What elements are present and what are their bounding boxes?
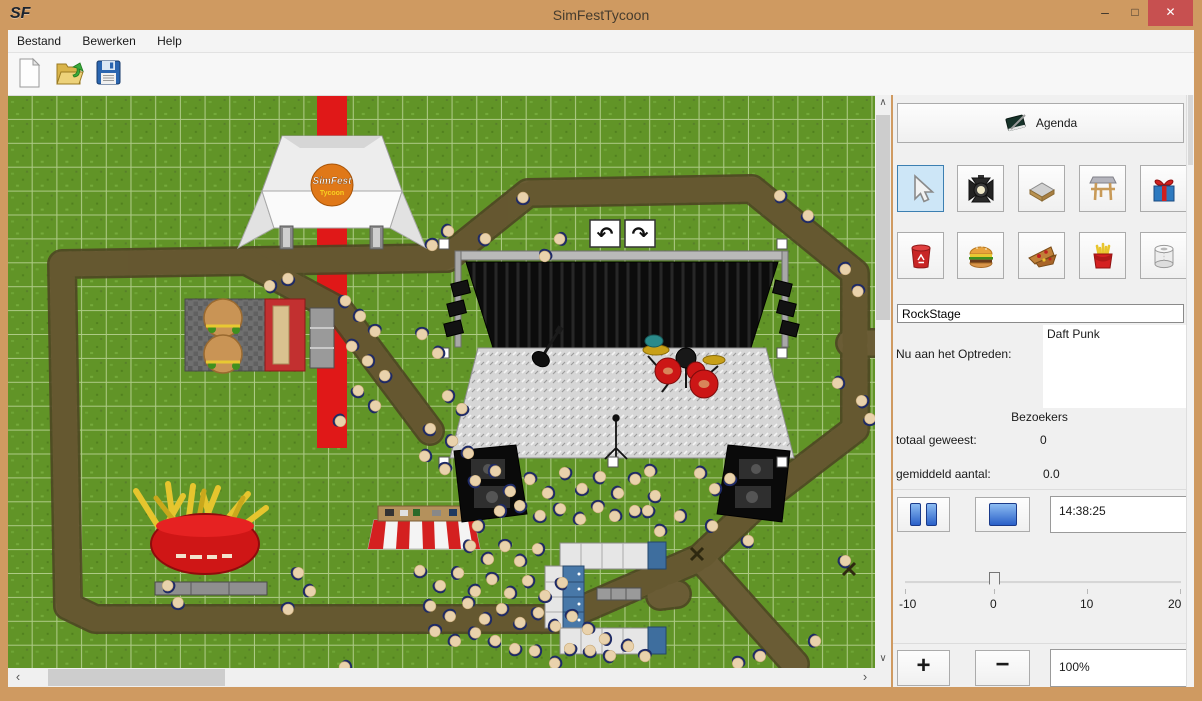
open-folder-icon <box>52 56 86 90</box>
visitors-header: Bezoekers <box>893 410 1186 424</box>
slider-label-ten: 10 <box>1080 597 1093 611</box>
slider-tick <box>994 589 995 594</box>
horizontal-scroll-thumb[interactable] <box>48 669 225 686</box>
panel-scrollbar[interactable] <box>1186 95 1194 687</box>
side-panel: Agenda <box>893 95 1186 687</box>
scrollbar-corner <box>875 668 891 687</box>
tool-gift-button[interactable] <box>1140 165 1187 212</box>
festival-map-canvas[interactable]: SimFest Tycoon <box>8 95 875 669</box>
visitors-avg-value: 0.0 <box>1043 467 1060 481</box>
tool-stage-button[interactable] <box>1079 165 1126 212</box>
stop-icon <box>989 503 1017 526</box>
pause-icon <box>910 503 921 526</box>
new-file-icon <box>12 56 46 90</box>
tool-path-button[interactable] <box>1018 165 1065 212</box>
stage-frame-icon <box>1087 173 1119 205</box>
burger-stand[interactable] <box>185 299 305 373</box>
tool-pizza-button[interactable] <box>1018 232 1065 279</box>
canvas-horizontal-scrollbar[interactable]: ‹ › <box>8 668 875 687</box>
visitors-avg-label: gemiddeld aantal: <box>896 467 991 481</box>
stage-name-input[interactable] <box>897 304 1184 323</box>
zoom-out-button[interactable]: − <box>975 650 1030 686</box>
save-file-button[interactable] <box>92 56 126 90</box>
agenda-button[interactable]: Agenda <box>897 103 1184 143</box>
rotate-right-button[interactable]: ↷ <box>625 220 655 247</box>
now-performing-label: Nu aan het Optreden: <box>896 347 1041 361</box>
vertical-scroll-thumb[interactable] <box>876 115 890 320</box>
close-button[interactable]: ✕ <box>1148 0 1193 26</box>
toilet-paper-icon <box>1148 240 1180 272</box>
tool-spotlight-button[interactable] <box>957 165 1004 212</box>
performer-item[interactable]: Daft Punk <box>1047 327 1184 341</box>
pizza-icon <box>1026 240 1058 272</box>
stage-floor <box>450 348 794 458</box>
path-tile-icon <box>1026 173 1058 205</box>
new-file-button[interactable] <box>12 56 46 90</box>
agenda-book-icon <box>1004 112 1028 134</box>
agenda-label: Agenda <box>1036 116 1077 130</box>
divider <box>893 489 1186 490</box>
slider-tick <box>1180 589 1181 594</box>
save-floppy-icon <box>92 56 126 90</box>
scroll-left-icon[interactable]: ‹ <box>8 668 28 687</box>
panel-scroll-thumb[interactable] <box>1188 95 1193 165</box>
visitors-total-label: totaal geweest: <box>896 433 977 447</box>
stop-button[interactable] <box>975 497 1030 532</box>
slider-label-zero: 0 <box>990 597 997 611</box>
scroll-down-icon[interactable]: ∨ <box>875 651 891 668</box>
menu-bestand[interactable]: Bestand <box>8 30 70 48</box>
pause-button[interactable] <box>897 497 950 532</box>
scroll-right-icon[interactable]: › <box>855 668 875 687</box>
title-bar[interactable]: SF SimFestTycoon – □ ✕ <box>0 0 1202 30</box>
simfest-logo: SimFest Tycoon <box>311 164 353 206</box>
cursor-icon <box>905 173 937 205</box>
tool-fries-button[interactable] <box>1079 232 1126 279</box>
open-file-button[interactable] <box>52 56 86 90</box>
menu-bewerken[interactable]: Bewerken <box>73 30 144 48</box>
bench[interactable] <box>597 588 641 600</box>
slider-tick <box>1087 589 1088 594</box>
zoom-in-button[interactable]: + <box>897 650 950 686</box>
tool-toilet-paper-button[interactable] <box>1140 232 1187 279</box>
spotlight-icon <box>965 173 997 205</box>
zoom-level-value: 100% <box>1050 649 1188 687</box>
tool-trash-button[interactable] <box>897 232 944 279</box>
app-window: { "window": { "title": "SimFestTycoon", … <box>0 0 1202 701</box>
rotate-right-icon: ↷ <box>632 222 649 246</box>
scroll-up-icon[interactable]: ∧ <box>875 95 891 112</box>
maximize-button[interactable]: □ <box>1122 0 1148 26</box>
burger-icon <box>965 240 997 272</box>
slider-label-min: -10 <box>899 597 916 611</box>
window-title: SimFestTycoon <box>0 7 1202 23</box>
stage-curtain <box>466 262 778 354</box>
slider-label-max: 20 <box>1168 597 1181 611</box>
menu-bar: Bestand Bewerken Help <box>8 30 1194 53</box>
trash-bin-icon <box>905 240 937 272</box>
performers-list[interactable]: Daft Punk <box>1043 325 1188 408</box>
bench[interactable] <box>310 308 334 368</box>
rotate-left-icon: ↶ <box>597 222 614 246</box>
slider-tick <box>905 589 906 594</box>
gift-icon <box>1148 173 1180 205</box>
minimize-button[interactable]: – <box>1092 0 1118 26</box>
visitors-total-value: 0 <box>1040 433 1047 447</box>
tool-cursor-button[interactable] <box>897 165 944 212</box>
rotate-left-button[interactable]: ↶ <box>590 220 620 247</box>
svg-text:Tycoon: Tycoon <box>320 190 344 197</box>
svg-text:SimFest: SimFest <box>313 176 353 187</box>
speed-slider-track[interactable] <box>905 581 1181 584</box>
tool-burger-button[interactable] <box>957 232 1004 279</box>
simulation-clock: 14:38:25 <box>1050 496 1188 533</box>
fries-icon <box>1087 240 1119 272</box>
canvas-vertical-scrollbar[interactable]: ∧ ∨ <box>875 95 891 668</box>
menu-help[interactable]: Help <box>148 30 191 48</box>
toolbar <box>8 53 1194 95</box>
divider <box>893 643 1186 644</box>
